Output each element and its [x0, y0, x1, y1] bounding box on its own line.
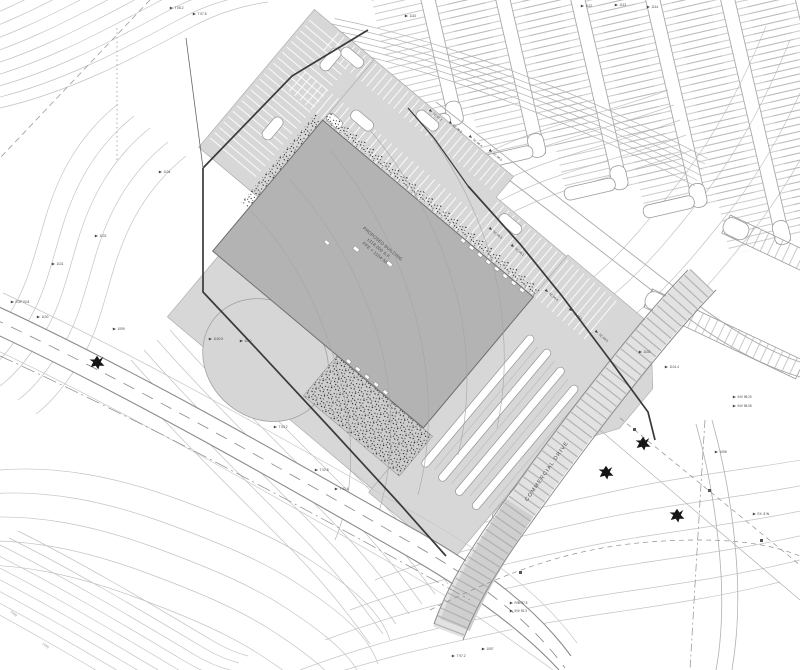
spot-annotation-text: 1101.4 — [670, 365, 680, 369]
spot-annotation-text: 1098 — [720, 450, 727, 454]
spot-annotation-text: INV 92.3 — [515, 609, 528, 613]
spot-annotation-text: T 02.4 — [340, 487, 349, 491]
spot-annotation-text: T 07.8 — [198, 12, 207, 16]
spot-annotation-text: 1100.5 — [214, 337, 224, 341]
spot-annotation-text: 1100 — [245, 339, 252, 343]
spot-annotation-text: 1102 — [644, 350, 651, 354]
spot-annotation-text: EOP 00.8 — [16, 300, 30, 304]
spot-annotation-text: 1101 — [57, 262, 64, 266]
spot-annotation-text: 1097 — [487, 647, 494, 651]
spot-annotation-text: 1114 — [652, 5, 659, 9]
spot-annotation-text: INV 98.05 — [738, 404, 752, 408]
spot-annotation-text: T 03.2 — [279, 425, 288, 429]
site-plan-canvas: PROPOSED BUILDING ±118,000 S.F. FFE = 11… — [0, 0, 800, 670]
spot-annotation-text: 1104 — [164, 170, 171, 174]
spot-annotation-text: RIM 97.5 — [515, 601, 528, 605]
spot-annotation-text: 1099 — [118, 327, 125, 331]
spot-annotation-text: INV 98.20 — [738, 395, 752, 399]
spot-annotation-text: 1113 — [620, 3, 627, 7]
spot-annotation-text: T 08.2 — [175, 6, 184, 10]
spot-annotation-text: 1100 — [42, 315, 49, 319]
spot-annotation-text: T 02.8 — [320, 468, 329, 472]
drawing-area: PROPOSED BUILDING ±118,000 S.F. FFE = 11… — [0, 0, 800, 670]
spot-annotation-text: 1110 — [410, 14, 417, 18]
spot-annotation-text: 1102 — [100, 234, 107, 238]
spot-annotation-text: T 97.2 — [457, 654, 466, 658]
spot-annotation-text: EX. 8 W — [758, 512, 770, 516]
spot-annotation-text: 1112 — [586, 4, 593, 8]
